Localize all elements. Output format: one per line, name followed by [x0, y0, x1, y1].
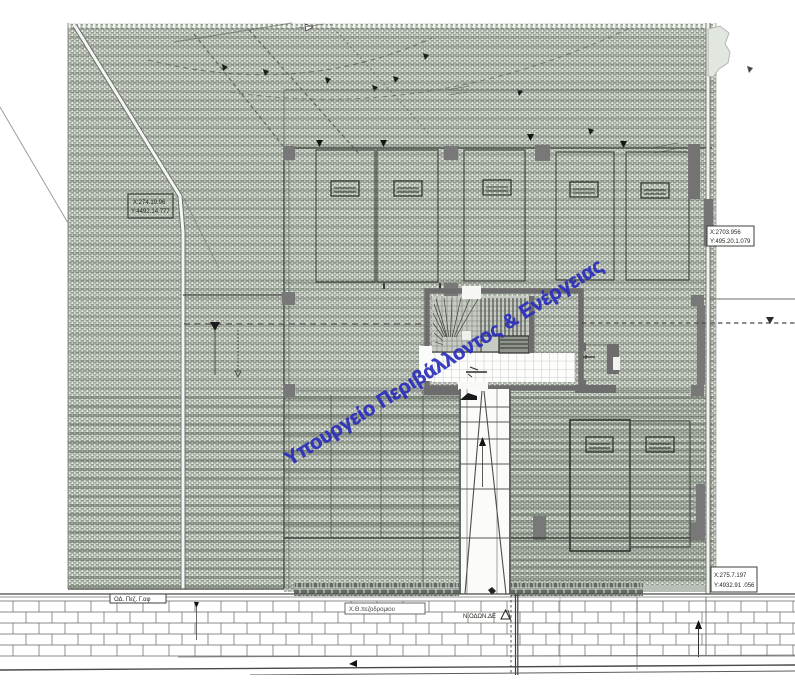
svg-text:Χ:274.19.96: Χ:274.19.96: [133, 200, 166, 206]
svg-text:Υ:4932.91 .056: Υ:4932.91 .056: [714, 583, 755, 589]
svg-text:ΟΔ. Πεζ. Γ.αφ: ΟΔ. Πεζ. Γ.αφ: [114, 597, 151, 603]
svg-text:Χ:275.7.197: Χ:275.7.197: [714, 573, 747, 579]
svg-text:Ν.ΟΔΩΝ.ΔΕ: Ν.ΟΔΩΝ.ΔΕ: [463, 614, 496, 620]
svg-text:Υ:4492.14.777: Υ:4492.14.777: [131, 209, 170, 215]
svg-text:Χ.Θ.πεζοδρομιου: Χ.Θ.πεζοδρομιου: [349, 607, 395, 613]
svg-text:Χ:2703.956: Χ:2703.956: [710, 230, 741, 236]
svg-text:Υ:495.20.1.079: Υ:495.20.1.079: [710, 239, 751, 245]
